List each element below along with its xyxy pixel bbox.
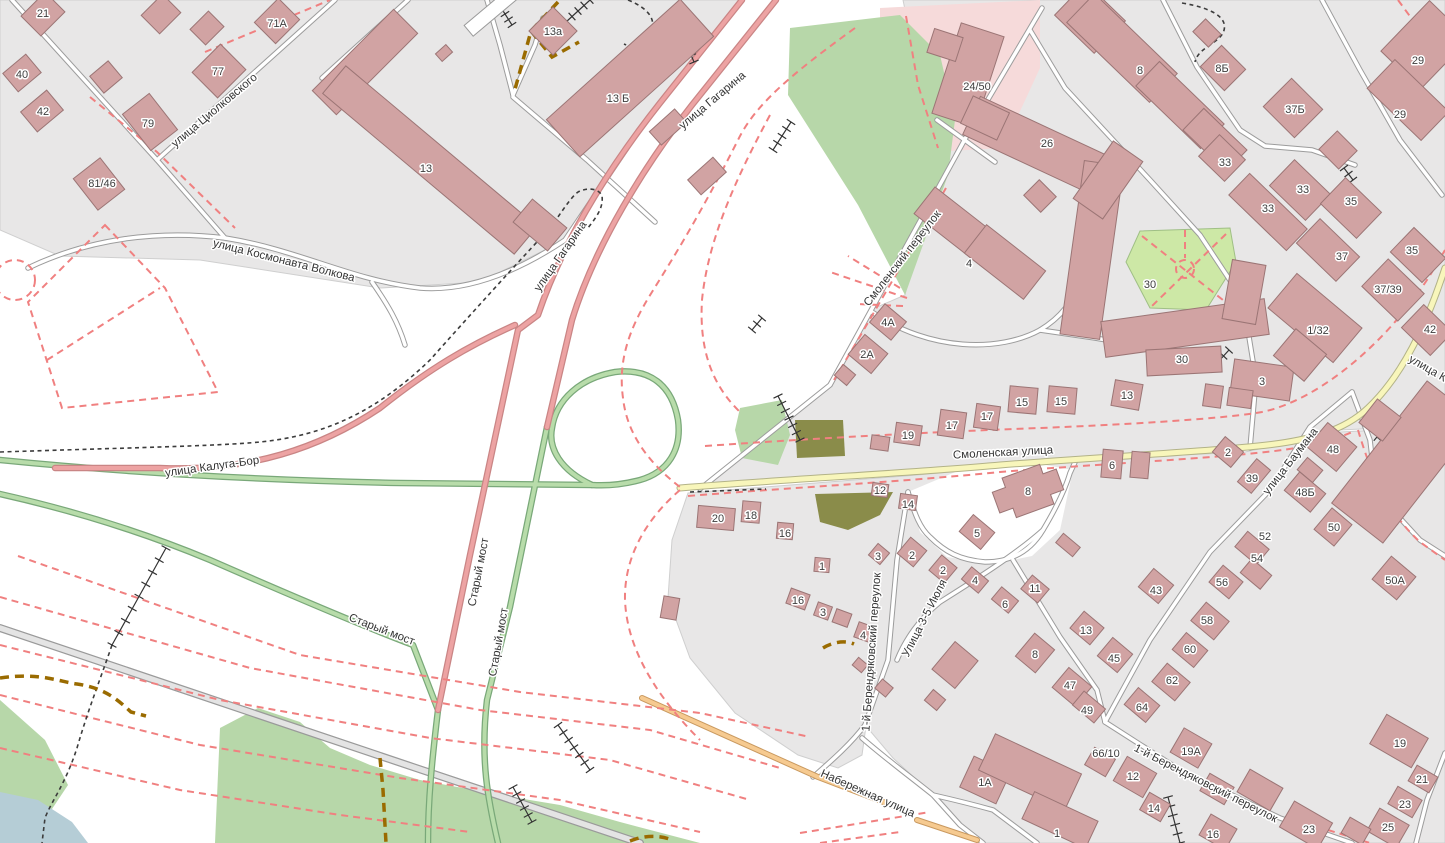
railway-hatch <box>554 722 594 773</box>
building-number-label: 12 <box>1127 771 1139 783</box>
building-number-label: 5 <box>974 528 980 540</box>
building-number-label: 62 <box>1166 675 1178 687</box>
building <box>1227 387 1253 408</box>
building-number-label: 1/32 <box>1307 325 1328 337</box>
building-number-label: 56 <box>1216 577 1228 589</box>
building-number-label: 13 <box>1121 390 1133 402</box>
building-number-label: 37Б <box>1285 104 1304 116</box>
railway-hatch <box>769 119 795 152</box>
building-number-label: 21 <box>1416 774 1428 786</box>
building-number-label: 17 <box>946 420 958 432</box>
building-number-label: 2 <box>1225 447 1231 459</box>
building-number-label: 2 <box>909 550 915 562</box>
building-number-label: 17 <box>981 411 993 423</box>
railway-hatch <box>748 315 766 333</box>
building-number-label: 58 <box>1201 615 1213 627</box>
building-number-label: 30 <box>1176 354 1188 366</box>
building-number-label: 8Б <box>1215 63 1228 75</box>
building-number-label: 21 <box>37 8 49 20</box>
building-number-label: 64 <box>1136 702 1148 714</box>
building-number-label: 20 <box>712 513 724 525</box>
building-number-label: 37/39 <box>1374 284 1402 296</box>
building-number-label: 19 <box>1394 738 1406 750</box>
building-number-label: 26 <box>1041 138 1053 150</box>
building <box>1130 451 1150 478</box>
building-number-label: 6 <box>1002 599 1008 611</box>
landuse-layer <box>0 0 1445 843</box>
building-number-label: 3 <box>820 607 826 619</box>
building-number-label: 19 <box>902 430 914 442</box>
building-number-label: 48 <box>1327 444 1339 456</box>
building-number-label: 14 <box>1148 803 1160 815</box>
building-number-label: 4 <box>972 575 978 587</box>
building-number-label: 16 <box>1207 829 1219 841</box>
building-number-label: 33 <box>1262 203 1274 215</box>
street-name-label: Старый мост <box>347 612 417 648</box>
building-number-label: 37 <box>1336 251 1348 263</box>
building-number-label: 16 <box>792 595 804 607</box>
building-number-label: 40 <box>16 69 28 81</box>
building <box>870 435 890 451</box>
building-number-label: 13 <box>1080 625 1092 637</box>
building-number-label: 1А <box>978 777 992 789</box>
building-number-label: 13 Б <box>607 93 630 105</box>
building-number-label: 49 <box>1081 705 1093 717</box>
building-number-label: 52 <box>1259 531 1271 543</box>
building-number-label: 15 <box>1016 397 1028 409</box>
building-number-label: 4А <box>881 317 895 329</box>
street-name-label: Старый мост <box>487 606 511 677</box>
building-number-label: 24/50 <box>963 81 991 93</box>
building-number-label: 6 <box>1109 460 1115 472</box>
building-number-label: 2А <box>860 349 874 361</box>
building-number-label: 18 <box>745 510 757 522</box>
building-number-label: 81/46 <box>88 178 116 190</box>
building-number-label: 11 <box>1029 583 1040 595</box>
building-number-label: 3 <box>875 551 881 563</box>
building-number-label: 14 <box>902 499 914 511</box>
building-number-label: 2 <box>940 565 946 577</box>
building-number-label: 29 <box>1394 109 1406 121</box>
building <box>660 596 680 620</box>
building-number-label: 45 <box>1108 653 1120 665</box>
building-number-label: 8 <box>1025 486 1031 498</box>
building-number-label: 42 <box>1424 324 1436 336</box>
building-number-label: 1 <box>819 561 825 573</box>
building-number-label: 23 <box>1303 824 1315 836</box>
building-number-label: 43 <box>1150 585 1162 597</box>
building <box>688 157 727 195</box>
building-number-label: 79 <box>142 118 154 130</box>
building-number-label: 47 <box>1064 680 1076 692</box>
building-number-label: 71А <box>267 18 287 30</box>
building-number-label: 50 <box>1328 522 1340 534</box>
railway-hatch <box>108 546 171 648</box>
building-number-label: 19А <box>1181 746 1201 758</box>
building-number-label: 60 <box>1184 644 1196 656</box>
building-number-label: 50А <box>1385 575 1405 587</box>
building-number-label: 12 <box>874 485 886 497</box>
building-number-label: 4 <box>966 258 972 270</box>
building-number-label: 8 <box>1137 65 1143 77</box>
building-number-label: 13 <box>420 163 432 175</box>
building-number-label: 48Б <box>1295 487 1314 499</box>
building-number-label: 33 <box>1297 184 1309 196</box>
building-number-label: 39 <box>1246 473 1258 485</box>
street-name-label: Набережная улица <box>819 768 917 821</box>
building-number-label: 66/10 <box>1092 748 1120 760</box>
building-number-label: 13а <box>544 26 563 38</box>
building-number-label: 8 <box>1032 649 1038 661</box>
building-number-label: 35 <box>1345 196 1357 208</box>
building-number-label: 1 <box>1054 828 1060 840</box>
building-number-label: 15 <box>1055 396 1067 408</box>
building <box>1203 384 1224 408</box>
building-number-label: 42 <box>37 106 49 118</box>
building-number-label: 16 <box>779 528 791 540</box>
building-number-label: 29 <box>1412 55 1424 67</box>
map-canvas[interactable]: 2171А4042777981/461313а13 Б24/5088Б37Б29… <box>0 0 1445 843</box>
map-viewport[interactable]: 2171А4042777981/461313а13 Б24/5088Б37Б29… <box>0 0 1445 843</box>
building-number-label: 3 <box>1259 376 1265 388</box>
building-number-label: 54 <box>1251 553 1263 565</box>
building-number-label: 77 <box>212 66 224 78</box>
building-number-label: 23 <box>1399 799 1411 811</box>
building-number-label: 25 <box>1382 822 1394 834</box>
building-number-label: 35 <box>1406 245 1418 257</box>
building-number-label: 4 <box>860 630 866 642</box>
building-number-label: 33 <box>1219 157 1231 169</box>
building-number-label: 30 <box>1144 279 1156 291</box>
